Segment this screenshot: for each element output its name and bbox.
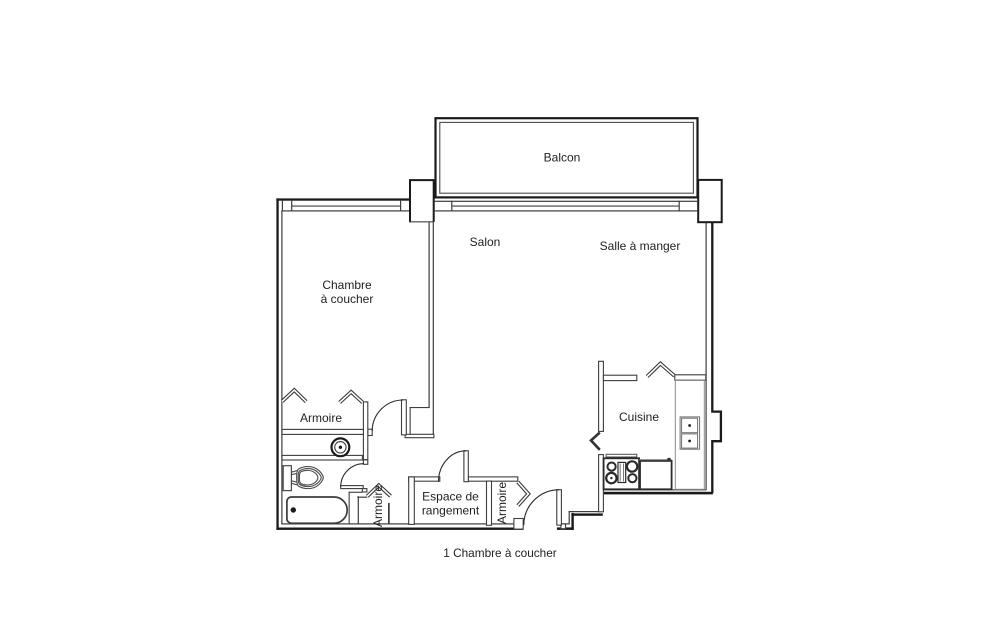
svg-text:Chambre: Chambre <box>322 278 372 292</box>
svg-text:Salle à manger: Salle à manger <box>600 239 681 253</box>
svg-text:à coucher: à coucher <box>321 292 374 306</box>
svg-text:rangement: rangement <box>422 504 480 518</box>
svg-text:1 Chambre à coucher: 1 Chambre à coucher <box>443 546 557 560</box>
svg-text:Salon: Salon <box>470 235 501 249</box>
svg-text:Armoire: Armoire <box>495 482 509 524</box>
svg-text:Espace de: Espace de <box>422 490 479 504</box>
svg-text:Armoire: Armoire <box>371 485 385 527</box>
svg-text:Armoire: Armoire <box>300 411 342 425</box>
svg-text:Cuisine: Cuisine <box>619 410 659 424</box>
svg-text:Balcon: Balcon <box>544 151 581 165</box>
